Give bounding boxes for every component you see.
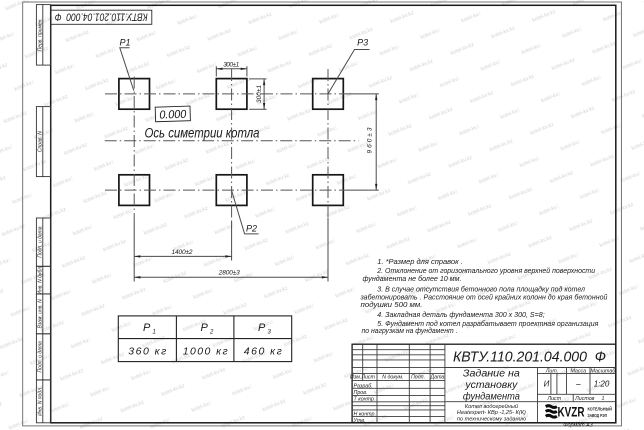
svg-text:Перв. примен.: Перв. примен. [38, 18, 44, 51]
svg-text:КВТУ.110.201.04.000 Ф: КВТУ.110.201.04.000 Ф [453, 348, 606, 365]
svg-text:подушки 500 мм.: подушки 500 мм. [361, 300, 423, 309]
svg-text:1. *Размер для справок .: 1. *Размер для справок . [377, 257, 463, 266]
svg-text:Ось симетрии котла: Ось симетрии котла [145, 126, 260, 141]
svg-text:–: – [575, 380, 581, 389]
svg-text:по техническому заданию: по техническому заданию [457, 417, 527, 423]
svg-text:P: P [143, 322, 151, 334]
svg-text:1: 1 [153, 330, 156, 336]
svg-text:Котел водогрейный: Котел водогрейный [465, 403, 518, 410]
svg-text:0.000: 0.000 [159, 109, 187, 122]
svg-text:ЗАВОД РЭП: ЗАВОД РЭП [588, 413, 608, 418]
svg-text:Подп. и дата: Подп. и дата [38, 226, 44, 258]
svg-text:P2: P2 [246, 223, 257, 233]
svg-text:4. Закладная деталь фундамента: 4. Закладная деталь фундамента 300 x 300… [377, 310, 544, 319]
svg-text:Heatexpert- КВр -1,25- К(К): Heatexpert- КВр -1,25- К(К) [457, 410, 526, 416]
svg-text:Справ. N: Справ. N [38, 131, 44, 152]
svg-text:Дата: Дата [429, 375, 444, 381]
svg-text:КВТУ.110.201.04.000 Ф: КВТУ.110.201.04.000 Ф [55, 11, 148, 23]
svg-text:Листов: Листов [574, 396, 595, 402]
svg-text:Масса: Масса [570, 368, 586, 374]
svg-text:фундамента: фундамента [463, 391, 520, 403]
svg-text:P: P [258, 322, 266, 334]
svg-text:Лит.: Лит. [545, 368, 558, 374]
svg-text:Т контр.: Т контр. [354, 396, 376, 402]
svg-text:Формат А3: Формат А3 [563, 423, 593, 429]
svg-text:300±1: 300±1 [223, 62, 239, 69]
svg-text:P1: P1 [120, 38, 131, 48]
svg-text:Лист: Лист [546, 396, 561, 402]
svg-text:2800±3: 2800±3 [218, 270, 240, 277]
svg-text:Взам. инв. N: Взам. инв. N [38, 299, 44, 329]
svg-text:КОТЕЛЬНЫЙ: КОТЕЛЬНЫЙ [588, 404, 613, 411]
svg-text:Изм.Лист: Изм.Лист [350, 375, 376, 381]
svg-text:KVZR: KVZR [558, 404, 585, 419]
svg-text:360 кг: 360 кг [128, 345, 166, 357]
svg-text:по нагрузкам на фундамент .: по нагрузкам на фундамент . [362, 326, 458, 335]
svg-text:Утв.: Утв. [354, 418, 366, 424]
svg-text:Подп. и дата: Подп. и дата [38, 341, 44, 373]
svg-text:460 кг: 460 кг [244, 345, 282, 357]
svg-text:1400±2: 1400±2 [172, 249, 193, 256]
svg-text:300±1: 300±1 [256, 85, 263, 103]
svg-text:1:20: 1:20 [594, 380, 610, 389]
svg-text:1000 кг: 1000 кг [183, 345, 228, 357]
svg-text:установку: установку [464, 380, 518, 391]
svg-text:P: P [201, 322, 209, 334]
svg-text:И: И [544, 380, 550, 389]
svg-text:P3: P3 [357, 38, 368, 48]
svg-text:Задание на: Задание на [463, 368, 520, 379]
svg-text:Масштаб: Масштаб [591, 368, 617, 374]
svg-text:Пров.: Пров. [354, 390, 368, 396]
svg-text:Инв. N дубл.: Инв. N дубл. [38, 266, 44, 295]
svg-text:N докум.: N докум. [382, 375, 403, 381]
svg-text:2: 2 [209, 330, 214, 336]
svg-text:Подп.: Подп. [411, 375, 425, 381]
svg-text:фундамента не более 10 мм.: фундамента не более 10 мм. [363, 274, 462, 283]
svg-text:Н контр.: Н контр. [354, 411, 376, 417]
svg-text:Разраб.: Разраб. [354, 383, 373, 389]
svg-text:Инв. N подл.: Инв. N подл. [38, 387, 44, 416]
svg-text:1: 1 [602, 396, 605, 402]
